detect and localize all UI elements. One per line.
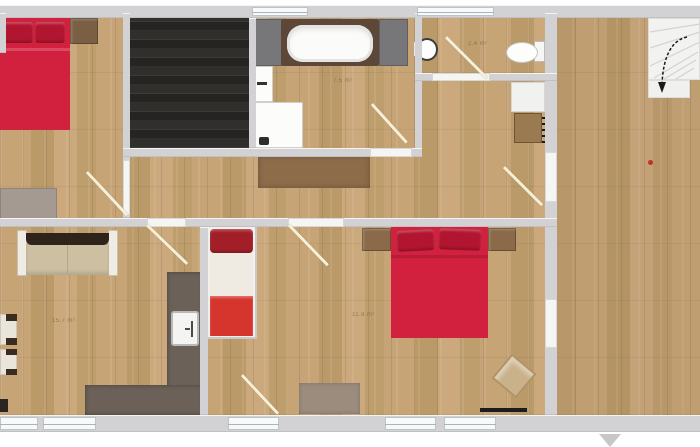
pillow	[210, 229, 253, 253]
blanket-fold	[391, 255, 488, 258]
armchair[interactable]	[0, 349, 17, 375]
faucet-icon	[257, 82, 267, 85]
wall-top	[0, 5, 700, 18]
sofa-armrest	[108, 230, 118, 276]
rug[interactable]	[299, 383, 360, 414]
sofa-back	[26, 233, 109, 245]
door-opening[interactable]	[123, 160, 130, 215]
door-opening[interactable]	[370, 148, 412, 157]
nightstand[interactable]	[362, 228, 391, 251]
wc-area-label: 2.4 m²	[468, 41, 487, 47]
wall-bottom	[0, 415, 700, 432]
blanket-fold	[0, 48, 70, 51]
hall-sideboard[interactable]	[258, 156, 370, 188]
single-bed[interactable]	[206, 225, 257, 339]
sofa[interactable]	[26, 233, 109, 275]
bathroom-area-label: 7.5 m²	[333, 78, 352, 84]
window[interactable]	[417, 7, 494, 16]
door-opening[interactable]	[288, 218, 344, 227]
window[interactable]	[444, 417, 496, 430]
oven-handle-icon	[191, 321, 193, 337]
armrest	[6, 338, 17, 345]
wall-bath-wc	[415, 13, 422, 157]
cushion-divider	[67, 245, 68, 275]
pillow	[35, 22, 65, 43]
kitchen-counter-horizontal[interactable]	[85, 385, 203, 415]
window[interactable]	[43, 417, 96, 430]
washing-machine[interactable]	[255, 102, 303, 148]
bathtub[interactable]	[287, 25, 373, 62]
bathroom-cabinet-right[interactable]	[379, 19, 408, 66]
nightstand[interactable]	[70, 18, 98, 44]
armchair[interactable]	[0, 314, 17, 345]
double-bed[interactable]	[0, 18, 70, 130]
stairs-treads-and-arrow-icon	[648, 18, 700, 98]
window[interactable]	[252, 7, 308, 16]
furniture-item[interactable]	[0, 399, 8, 412]
door-opening[interactable]	[545, 299, 557, 348]
red-dot-marker	[648, 160, 653, 165]
door-opening[interactable]	[545, 152, 557, 202]
glass-door[interactable]	[228, 417, 279, 430]
pillow	[439, 228, 482, 250]
pillow	[3, 22, 33, 43]
window[interactable]	[385, 417, 436, 430]
armrest	[6, 314, 17, 321]
living-room-area-label: 15.7 m²	[52, 318, 75, 324]
toilet[interactable]	[506, 42, 538, 63]
window[interactable]	[0, 417, 38, 430]
bed-sheet	[210, 253, 253, 296]
dark-room-floor	[130, 18, 249, 148]
floor-plan: 15.7 m² 7.5 m² 2.4 m² 11.8 m²	[0, 0, 700, 447]
bathroom-cabinet-left[interactable]	[255, 19, 282, 66]
blanket	[210, 296, 253, 336]
bathroom-sink[interactable]	[255, 66, 273, 102]
double-bed[interactable]	[391, 226, 488, 338]
radiator[interactable]	[480, 408, 527, 412]
armrest	[6, 349, 17, 355]
door-opening[interactable]	[147, 218, 186, 227]
pillow	[396, 229, 434, 252]
washer-door-icon	[259, 137, 269, 145]
brown-cabinet[interactable]	[514, 113, 542, 143]
dresser[interactable]	[0, 188, 57, 221]
entrance-marker-icon	[599, 434, 621, 447]
oven[interactable]	[171, 311, 199, 346]
wall-middle-horizontal	[0, 218, 557, 227]
nightstand[interactable]	[488, 228, 516, 251]
oven-latch-icon	[185, 328, 190, 330]
bedroom-area-label: 11.8 m²	[352, 312, 375, 318]
white-cabinet[interactable]	[511, 82, 545, 112]
wall-darkroom-bath	[249, 18, 256, 148]
armrest	[6, 369, 17, 375]
wall-left-stub	[0, 13, 6, 53]
wall-living-bedroom	[200, 227, 208, 415]
